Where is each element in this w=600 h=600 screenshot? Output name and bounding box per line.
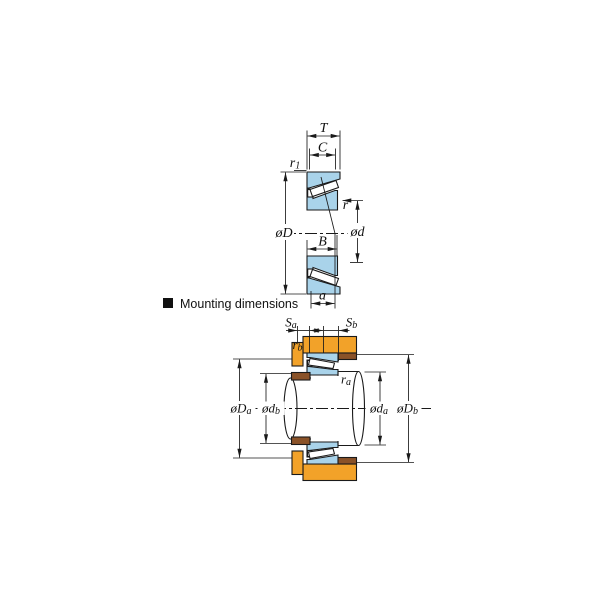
page: T C r1 øD r ød B a Mounting [0,0,600,600]
dim-label-rb: rb [292,337,302,354]
mounted-bearing-top [307,353,338,375]
housing-top [303,337,357,354]
housing-bottom-step [292,451,303,475]
dim-label-a: a [319,289,326,304]
shaft-spacer-ring-bottom [292,437,311,445]
dim-label-oD: øD [274,226,292,241]
mounting-dimensions-diagram: Sa Sb rb ra øDa ødb øda øDb [227,315,432,481]
bearing-upper-half [307,172,340,210]
dim-label-r: r [343,198,349,213]
dim-label-r1: r1 [290,156,300,172]
bearing-technical-drawing: T C r1 øD r ød B a Mounting [0,0,600,600]
shaft-spacer-ring-top [292,373,311,381]
housing-bottom [303,464,357,481]
mounted-bearing-bottom [307,442,338,464]
section-title: Mounting dimensions [180,297,298,311]
dim-label-ra: ra [341,372,351,389]
section-header: Mounting dimensions [163,297,298,311]
dim-label-C: C [318,141,328,156]
dim-label-B: B [318,235,327,250]
dim-label-T: T [320,121,329,136]
dim-label-Sb: Sb [346,315,358,332]
section-bullet-icon [163,298,173,308]
dim-label-od: ød [350,225,366,240]
bearing-cross-section-diagram: T C r1 øD r ød B a [274,121,368,309]
dim-label-Sa: Sa [285,315,297,332]
